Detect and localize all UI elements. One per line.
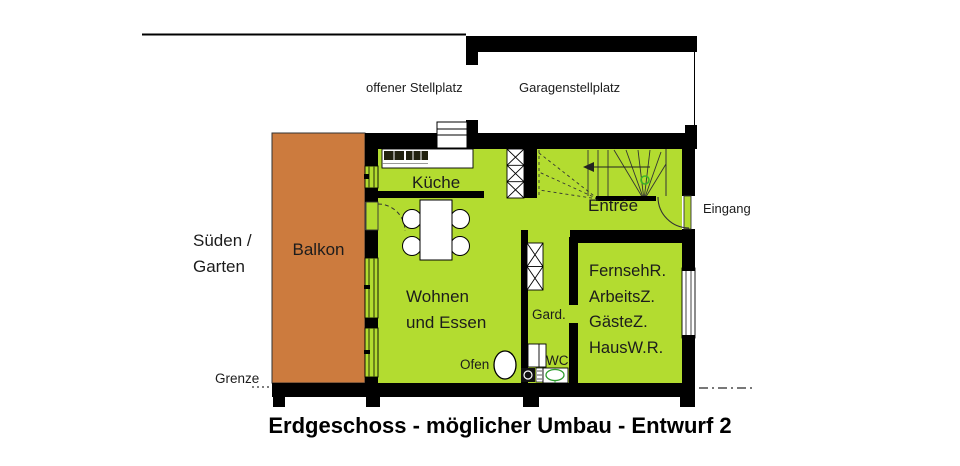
- kitchen-wall-fixture: [437, 122, 467, 148]
- appliance-icon: [521, 368, 535, 382]
- label-offener-stellplatz: offener Stellplatz: [366, 81, 463, 96]
- dining-table: [420, 200, 452, 260]
- washbasin-icon: [528, 344, 546, 367]
- chimney-shaft-kitchen: [507, 149, 524, 198]
- label-entree: Entrée: [588, 193, 638, 219]
- chimney-shaft-corridor: [527, 243, 543, 290]
- window-living-lower: [364, 328, 378, 377]
- floor-plan-canvas: offener Stellplatz Garagenstellplatz Süd…: [0, 0, 960, 466]
- label-sueden-garten: Süden / Garten: [193, 228, 252, 280]
- sink-icon: [406, 151, 428, 160]
- label-multi-room: FernsehR. ArbeitsZ. GästeZ. HausW.R.: [589, 259, 666, 361]
- window-living-upper: [364, 258, 378, 318]
- label-balkon: Balkon: [272, 237, 365, 263]
- label-wc: WC: [546, 353, 569, 369]
- chair: [403, 210, 422, 229]
- oven-icon: [494, 351, 516, 379]
- kitchen-counter: [382, 149, 473, 168]
- label-gard: Gard.: [532, 307, 566, 323]
- page-title: Erdgeschoss - möglicher Umbau - Entwurf …: [40, 413, 960, 439]
- label-grenze: Grenze: [215, 371, 259, 387]
- label-kueche: Küche: [412, 170, 460, 196]
- chair: [403, 237, 422, 256]
- chair: [451, 210, 470, 229]
- label-eingang: Eingang: [703, 202, 751, 217]
- floor-plan-drawing: [0, 0, 960, 466]
- label-garagenstellplatz: Garagenstellplatz: [519, 81, 620, 96]
- label-wohnen-essen: Wohnen und Essen: [406, 284, 486, 336]
- chair: [451, 237, 470, 256]
- window-east-room: [682, 268, 695, 338]
- label-ofen: Ofen: [460, 357, 489, 373]
- foundation-feet: [273, 397, 695, 407]
- window-kitchen: [364, 166, 378, 188]
